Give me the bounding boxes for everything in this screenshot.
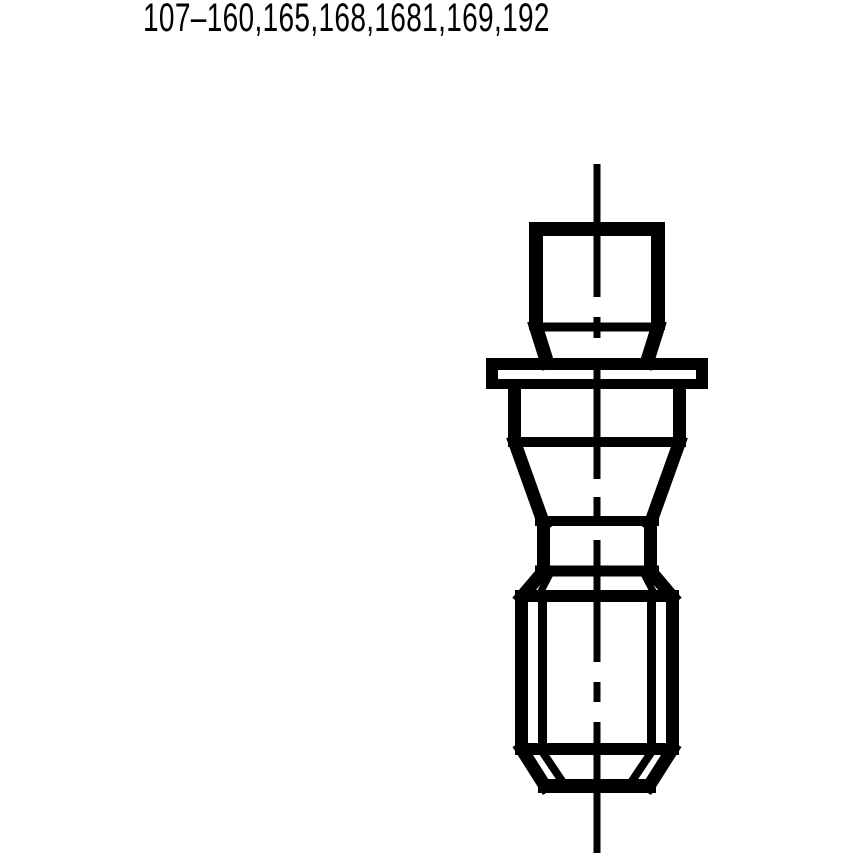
part-drawing [0, 0, 854, 854]
cone-taper-left [515, 442, 544, 523]
cone-taper-right [651, 442, 680, 523]
head-taper-left [536, 327, 547, 362]
technical-drawing-page: 107–160,165,168,1681,169,192 [0, 0, 854, 854]
head-taper-right [647, 327, 658, 362]
